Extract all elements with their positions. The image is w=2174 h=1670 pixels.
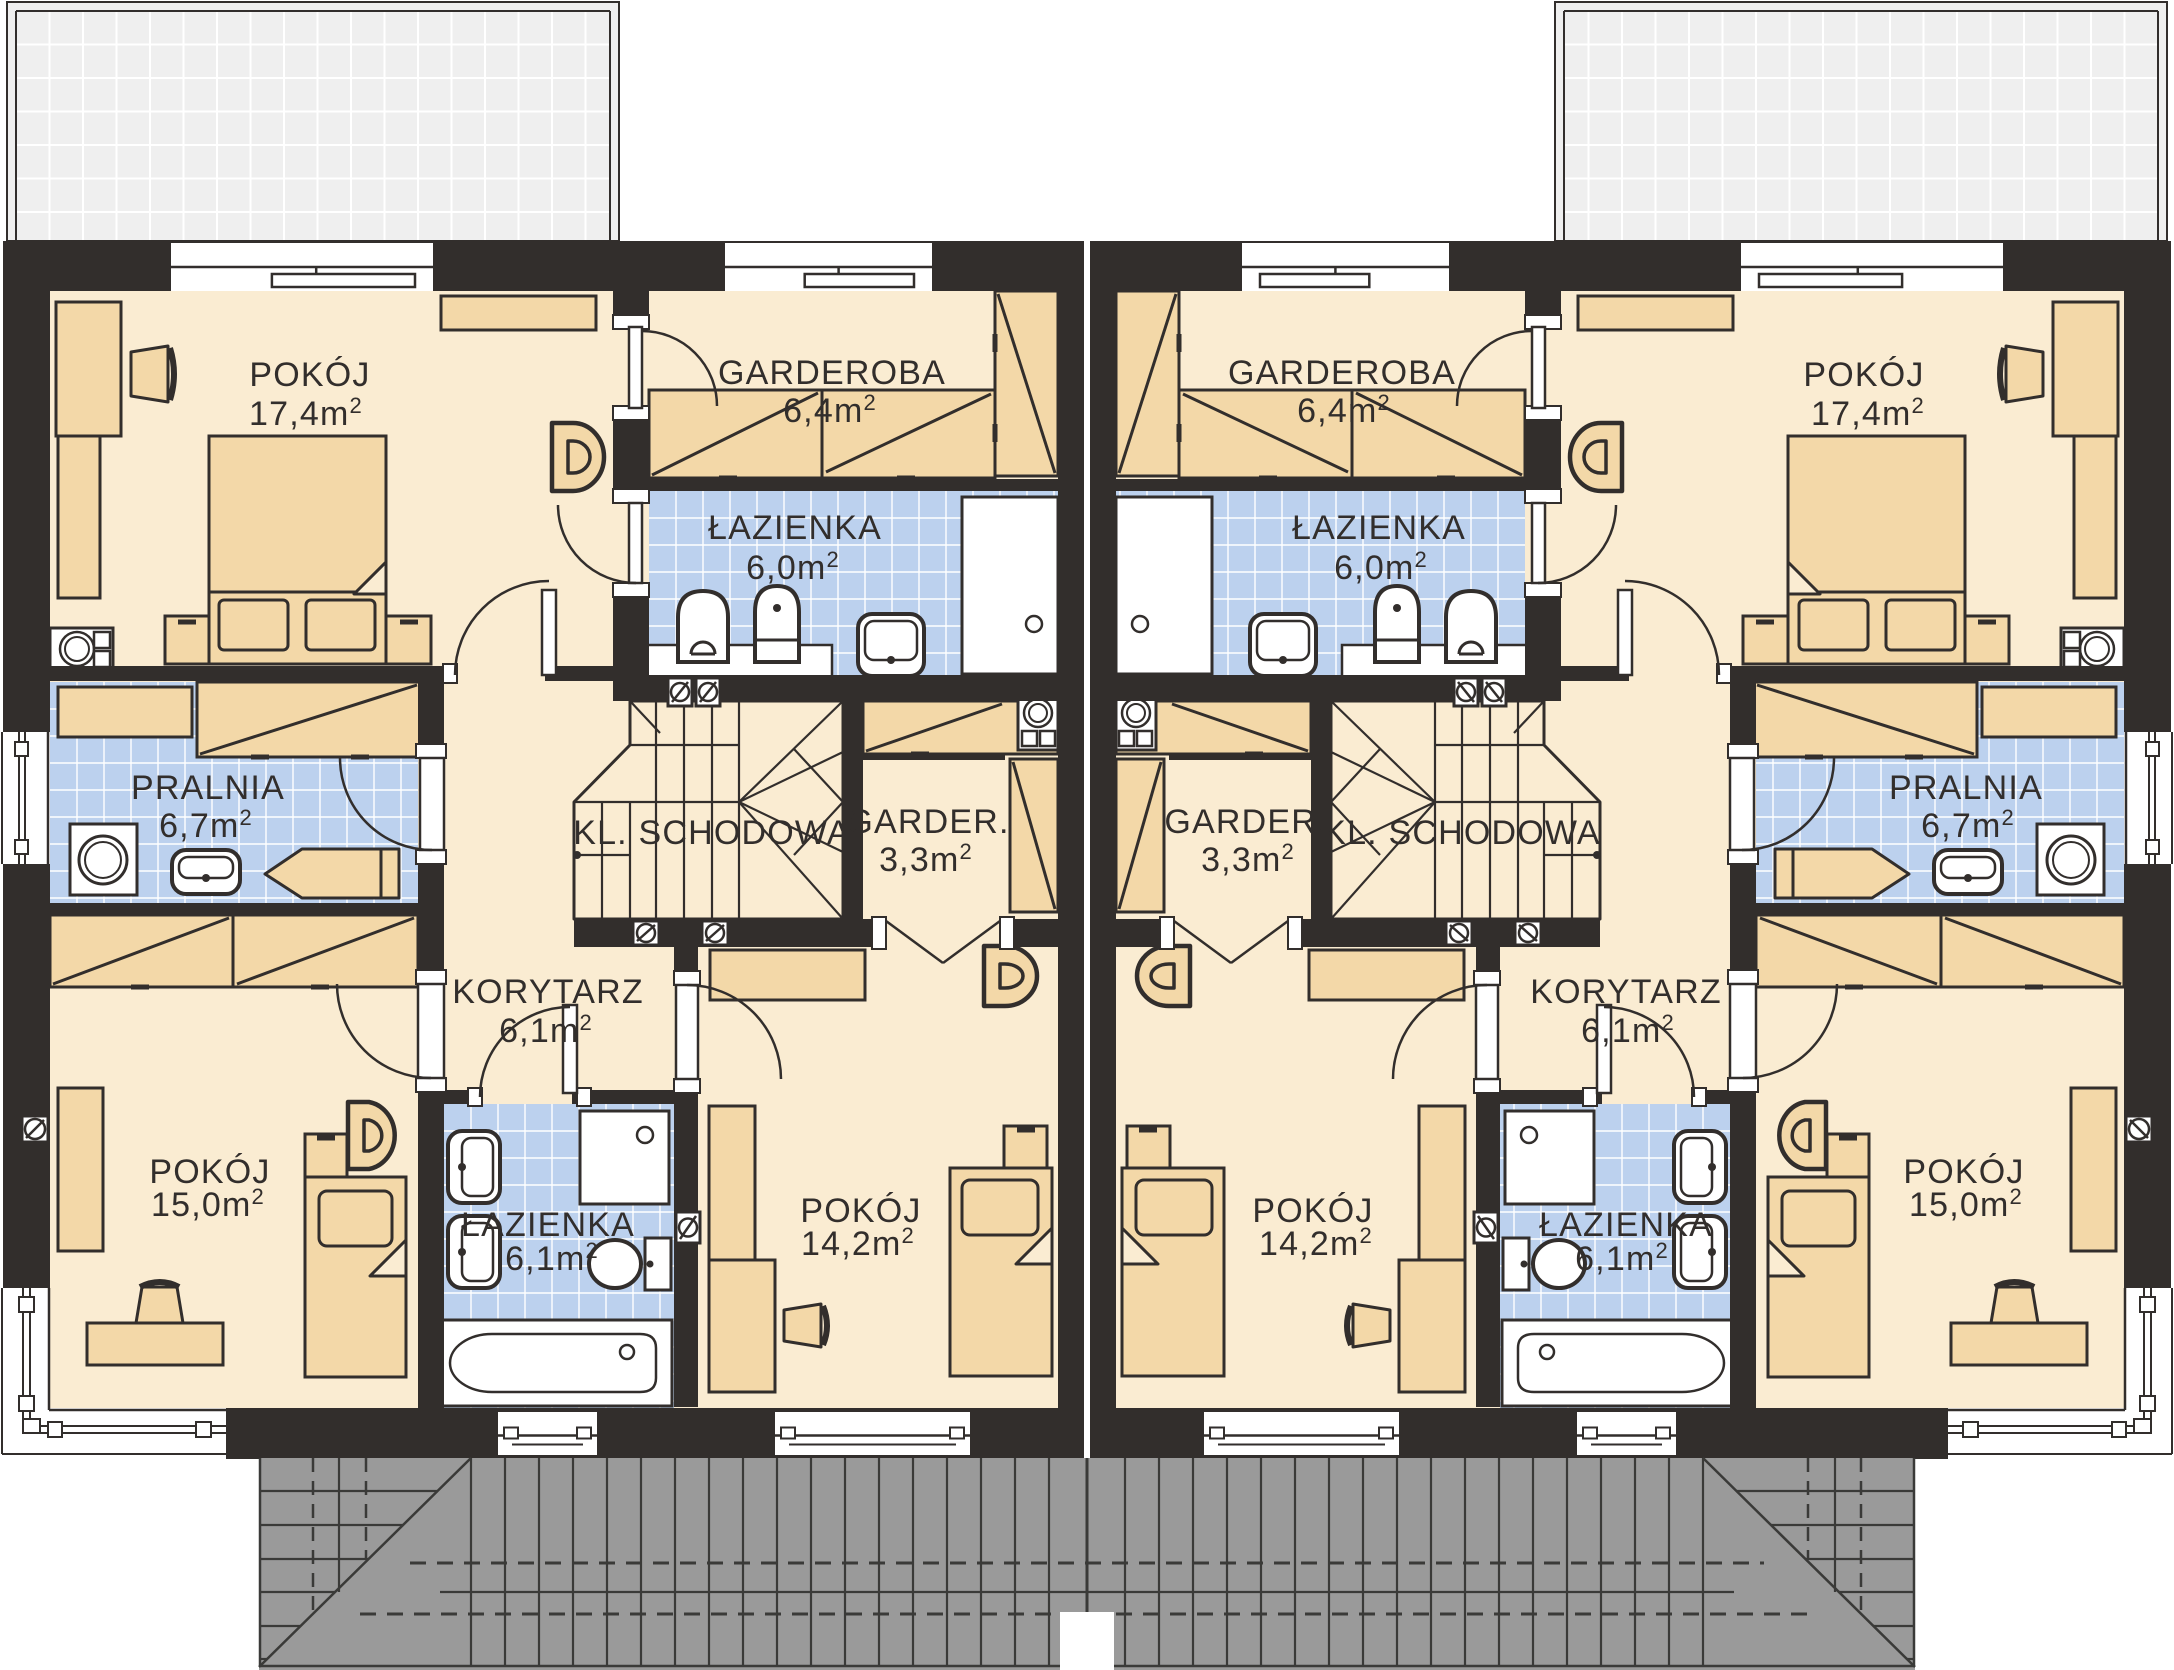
svg-text:KL. SCHODOWA: KL. SCHODOWA [573, 814, 851, 852]
svg-text:6,7m2: 6,7m2 [1921, 805, 2015, 845]
svg-text:6,1m2: 6,1m2 [1581, 1010, 1675, 1050]
svg-text:KORYTARZ: KORYTARZ [1530, 973, 1722, 1011]
svg-text:GARDER.: GARDER. [1164, 803, 1327, 841]
svg-text:ŁAZIENKA: ŁAZIENKA [461, 1206, 635, 1244]
svg-text:14,2m2: 14,2m2 [801, 1223, 915, 1263]
svg-text:PRALNIA: PRALNIA [131, 769, 285, 807]
svg-text:6,1m2: 6,1m2 [499, 1010, 593, 1050]
svg-text:GARDEROBA: GARDEROBA [718, 354, 946, 392]
svg-text:ŁAZIENKA: ŁAZIENKA [1292, 509, 1466, 547]
svg-text:3,3m2: 3,3m2 [879, 839, 973, 879]
svg-text:6,4m2: 6,4m2 [783, 390, 877, 430]
svg-text:ŁAZIENKA: ŁAZIENKA [708, 509, 882, 547]
svg-text:6,1m2: 6,1m2 [1575, 1238, 1669, 1278]
svg-text:6,0m2: 6,0m2 [746, 547, 840, 587]
svg-text:15,0m2: 15,0m2 [151, 1184, 265, 1224]
svg-text:ŁAZIENKA: ŁAZIENKA [1539, 1206, 1713, 1244]
svg-text:14,2m2: 14,2m2 [1259, 1223, 1373, 1263]
svg-text:KL. SCHODOWA: KL. SCHODOWA [1323, 814, 1601, 852]
svg-text:6,0m2: 6,0m2 [1334, 547, 1428, 587]
svg-text:6,1m2: 6,1m2 [505, 1238, 599, 1278]
svg-text:GARDEROBA: GARDEROBA [1228, 354, 1456, 392]
svg-text:17,4m2: 17,4m2 [1811, 393, 1925, 433]
svg-text:6,7m2: 6,7m2 [159, 805, 253, 845]
svg-text:15,0m2: 15,0m2 [1909, 1184, 2023, 1224]
svg-text:3,3m2: 3,3m2 [1201, 839, 1295, 879]
svg-text:POKÓJ: POKÓJ [249, 356, 370, 394]
svg-text:POKÓJ: POKÓJ [1803, 356, 1924, 394]
svg-text:PRALNIA: PRALNIA [1889, 769, 2043, 807]
svg-text:KORYTARZ: KORYTARZ [452, 973, 644, 1011]
svg-text:6,4m2: 6,4m2 [1297, 390, 1391, 430]
svg-text:GARDER.: GARDER. [846, 803, 1009, 841]
svg-text:17,4m2: 17,4m2 [249, 393, 363, 433]
